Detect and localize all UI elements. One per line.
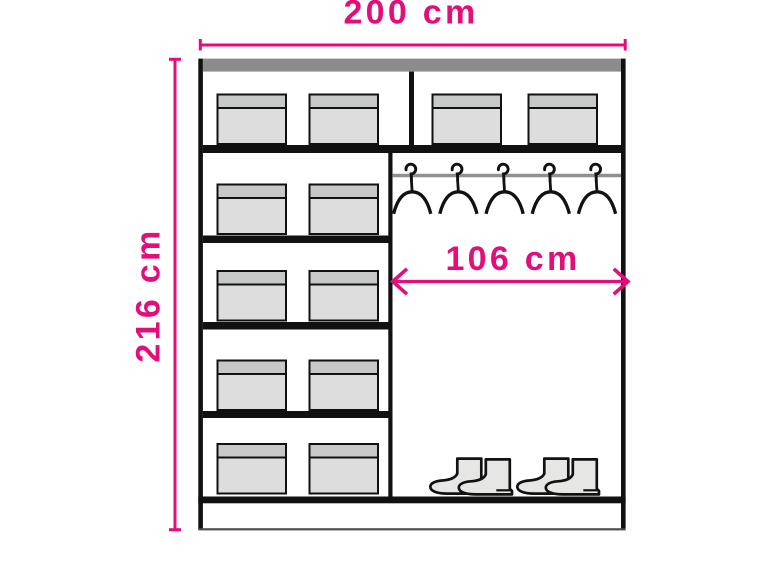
svg-text:216 cm: 216 cm bbox=[130, 227, 168, 362]
svg-text:200 cm: 200 cm bbox=[343, 0, 478, 32]
svg-text:106 cm: 106 cm bbox=[445, 240, 580, 278]
